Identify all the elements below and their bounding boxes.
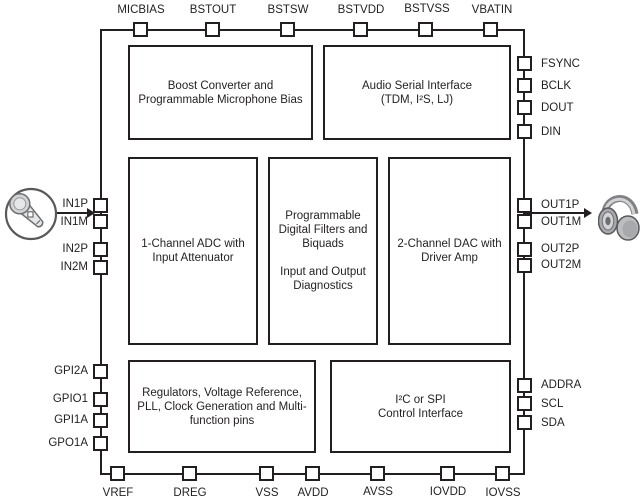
pin-bstvss-label: BSTVSS	[404, 2, 449, 16]
pin-bstvss	[418, 22, 433, 37]
pin-in2p	[93, 242, 108, 257]
pin-dreg-label: DREG	[173, 486, 206, 500]
pin-vss-label: VSS	[255, 486, 278, 500]
pin-iovdd-label: IOVDD	[430, 485, 466, 499]
pin-vbatin	[483, 22, 498, 37]
pin-dout-label: DOUT	[541, 101, 574, 115]
pin-bstvdd	[353, 22, 368, 37]
pin-avss	[370, 466, 385, 481]
pin-vbatin-label: VBATIN	[472, 3, 513, 17]
pin-out2m	[517, 258, 532, 273]
pin-din-label: DIN	[541, 125, 561, 139]
pin-out1m-label: OUT1M	[541, 215, 581, 229]
pin-dout	[517, 100, 532, 115]
block-control-interface: I²C or SPI Control Interface	[330, 360, 511, 453]
pin-vref	[110, 466, 125, 481]
pin-bstsw-label: BSTSW	[268, 3, 309, 17]
pin-avdd	[305, 466, 320, 481]
block-digital-filters: Programmable Digital Filters and Biquads…	[268, 157, 378, 345]
pin-out2p-label: OUT2P	[541, 242, 579, 256]
input-arrow-head	[87, 208, 95, 218]
pin-gpo1a	[93, 436, 108, 451]
microphone-icon	[3, 187, 59, 243]
block-audio-serial-interface: Audio Serial Interface (TDM, I²S, LJ)	[323, 45, 511, 140]
pin-bstout	[205, 22, 220, 37]
pin-out2m-label: OUT2M	[541, 258, 581, 272]
pin-gpo1a-label: GPO1A	[48, 436, 88, 450]
pin-iovss	[495, 466, 510, 481]
pin-din	[517, 124, 532, 139]
pin-addra-label: ADDRA	[541, 378, 581, 392]
pin-gpi2a-label: GPI2A	[54, 364, 88, 378]
pin-micbias	[133, 22, 148, 37]
pin-out1p	[517, 198, 532, 213]
functional-block-diagram: Boost Converter and Programmable Microph…	[0, 0, 641, 502]
output-arrow-line	[525, 212, 585, 214]
pin-scl	[517, 396, 532, 411]
pin-in1m-label: IN1M	[61, 215, 88, 229]
pin-in2m	[93, 260, 108, 275]
pin-fsync	[517, 56, 532, 71]
block-regulators: Regulators, Voltage Reference, PLL, Cloc…	[128, 360, 316, 453]
pin-iovss-label: IOVSS	[485, 486, 520, 500]
pin-vref-label: VREF	[103, 486, 134, 500]
pin-gpi1a	[93, 413, 108, 428]
headphones-icon	[598, 186, 640, 244]
pin-out2p	[517, 242, 532, 257]
pin-vss	[259, 466, 274, 481]
pin-fsync-label: FSYNC	[541, 57, 580, 71]
pin-scl-label: SCL	[541, 397, 563, 411]
pin-bstsw	[280, 22, 295, 37]
pin-in2m-label: IN2M	[61, 260, 88, 274]
pin-bstout-label: BSTOUT	[190, 3, 236, 17]
pin-dreg	[182, 466, 197, 481]
pin-bstvdd-label: BSTVDD	[338, 3, 385, 17]
pin-out1m	[517, 214, 532, 229]
block-adc: 1-Channel ADC with Input Attenuator	[128, 157, 258, 345]
pin-iovdd	[440, 466, 455, 481]
pin-out1p-label: OUT1P	[541, 198, 579, 212]
pin-avdd-label: AVDD	[297, 486, 328, 500]
pin-gpio1-label: GPIO1	[53, 392, 88, 406]
pin-gpi2a	[93, 364, 108, 379]
pin-in2p-label: IN2P	[62, 242, 88, 256]
block-boost-converter: Boost Converter and Programmable Microph…	[128, 45, 313, 140]
pin-gpi1a-label: GPI1A	[54, 413, 88, 427]
input-arrow-line	[56, 212, 88, 214]
pin-sda	[517, 415, 532, 430]
pin-micbias-label: MICBIAS	[117, 3, 164, 17]
pin-sda-label: SDA	[541, 416, 565, 430]
pin-avss-label: AVSS	[363, 485, 393, 499]
output-arrow-head	[584, 208, 592, 218]
block-dac: 2-Channel DAC with Driver Amp	[388, 157, 511, 345]
pin-bclk	[517, 78, 532, 93]
pin-in1m	[93, 214, 108, 229]
pin-in1p	[93, 198, 108, 213]
pin-in1p-label: IN1P	[62, 197, 88, 211]
pin-bclk-label: BCLK	[541, 79, 571, 93]
pin-gpio1	[93, 392, 108, 407]
pin-addra	[517, 378, 532, 393]
